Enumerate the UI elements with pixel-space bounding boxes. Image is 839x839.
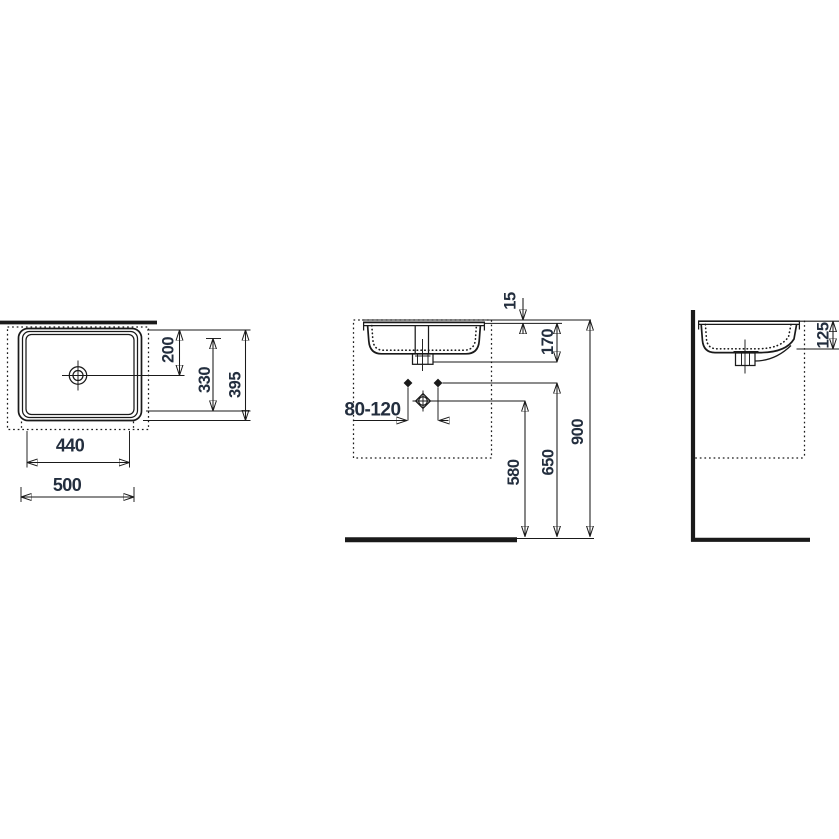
dimension-15: 15 (501, 292, 523, 334)
dimension-drawing-svg: 200 330 395 440 500 (0, 0, 839, 839)
basin-section-outline (363, 322, 485, 353)
dimension-580: 580 (505, 401, 525, 537)
dim-label-395: 395 (226, 372, 244, 398)
dim-label-170: 170 (539, 329, 557, 355)
dim-label-330: 330 (196, 367, 214, 393)
dimension-170: 170 (539, 323, 557, 362)
dimension-80-120: 80-120 (344, 400, 448, 421)
dim-label-580: 580 (505, 459, 523, 485)
dim-label-650: 650 (539, 449, 557, 475)
dimension-440: 440 (27, 436, 130, 463)
dim-label-125: 125 (814, 322, 832, 348)
basin-rim-outline (19, 329, 142, 421)
drain-outlet (734, 340, 759, 374)
dimension-395: 395 (226, 330, 245, 421)
dimension-650: 650 (539, 383, 557, 537)
top-view: 200 330 395 440 500 (0, 323, 251, 503)
basin-inner-contour (372, 326, 477, 351)
dim-label-200: 200 (159, 337, 177, 363)
dimension-330: 330 (196, 339, 214, 412)
dim-label-80-120: 80-120 (344, 400, 400, 421)
dimension-125: 125 (814, 321, 833, 349)
dim-label-15: 15 (501, 292, 519, 310)
side-view: 125 (691, 310, 839, 542)
drain-icon (62, 361, 185, 391)
dimension-900: 900 (569, 320, 590, 537)
washbasin-technical-drawing: 200 330 395 440 500 (0, 0, 839, 839)
dim-label-500: 500 (53, 475, 82, 495)
dimension-200: 200 (159, 330, 179, 376)
dim-label-900: 900 (569, 419, 587, 445)
front-view: 80-120 15 170 580 650 900 (344, 292, 594, 540)
dimension-500: 500 (21, 475, 134, 497)
installation-outline-dotted (695, 321, 804, 459)
basin-inner-contour (705, 324, 791, 348)
basin-section-outline (698, 321, 800, 361)
dim-label-440: 440 (56, 436, 85, 456)
